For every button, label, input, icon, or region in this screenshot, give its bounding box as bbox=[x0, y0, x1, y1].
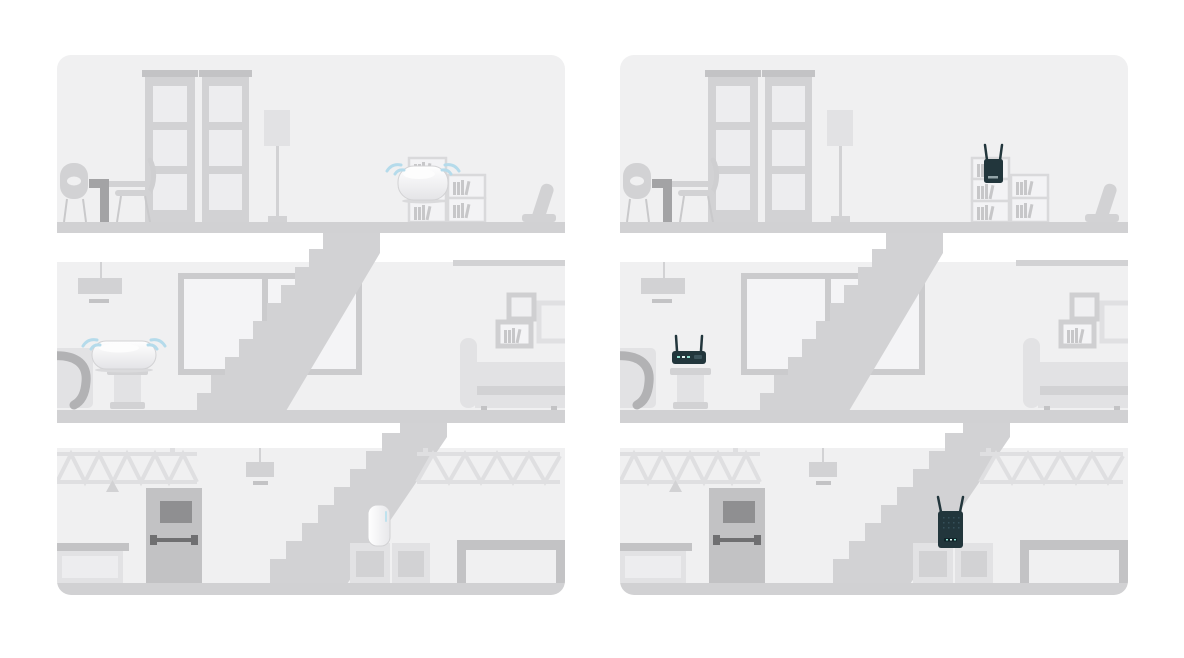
router-extender-panel bbox=[620, 55, 1128, 595]
page: { "scene": { "description_visible_text":… bbox=[0, 0, 1184, 658]
mesh-tower-node-icon bbox=[368, 505, 390, 546]
mesh-system-panel bbox=[57, 55, 565, 595]
